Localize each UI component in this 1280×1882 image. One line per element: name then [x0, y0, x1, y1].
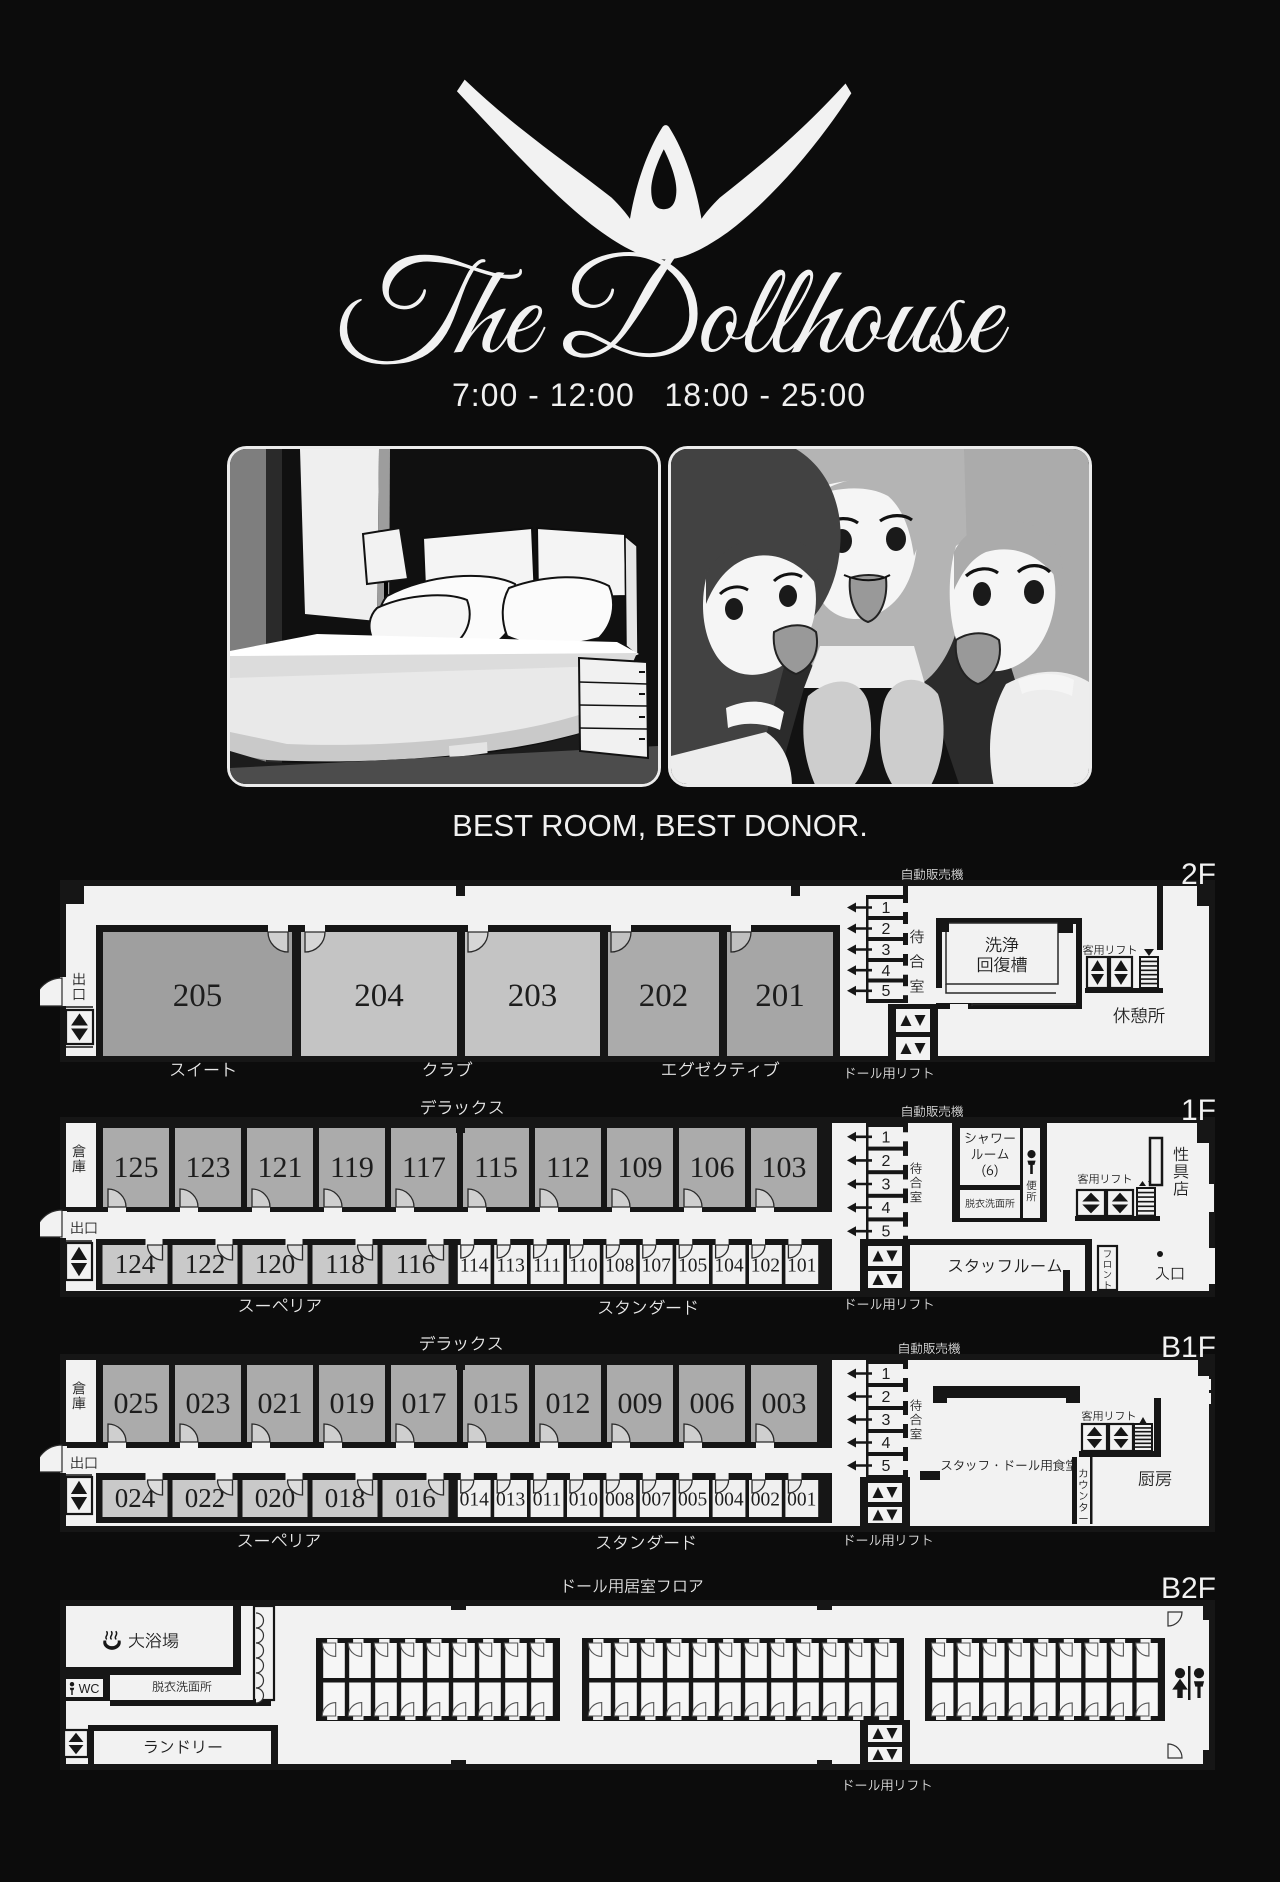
svg-text:106: 106 [690, 1151, 735, 1184]
svg-text:021: 021 [258, 1387, 303, 1420]
svg-text:202: 202 [639, 978, 689, 1014]
svg-text:1F: 1F [1181, 1095, 1216, 1127]
svg-text:019: 019 [330, 1387, 375, 1420]
svg-text:B1F: B1F [1161, 1332, 1216, 1364]
svg-text:1: 1 [882, 900, 891, 917]
svg-text:122: 122 [185, 1249, 226, 1279]
svg-text:025: 025 [114, 1387, 159, 1420]
svg-text:5: 5 [882, 983, 891, 1000]
svg-text:023: 023 [186, 1387, 231, 1420]
svg-text:003: 003 [762, 1387, 807, 1420]
svg-text:116: 116 [396, 1249, 436, 1279]
svg-text:110: 110 [569, 1256, 598, 1277]
svg-text:101: 101 [787, 1256, 816, 1277]
svg-text:108: 108 [605, 1256, 634, 1277]
svg-text:107: 107 [642, 1256, 672, 1277]
svg-text:111: 111 [533, 1256, 561, 1277]
svg-text:016: 016 [395, 1483, 436, 1513]
svg-text:2: 2 [882, 921, 891, 938]
svg-text:015: 015 [474, 1387, 519, 1420]
svg-text:5: 5 [882, 1458, 891, 1475]
svg-text:4: 4 [882, 1435, 891, 1452]
svg-text:3: 3 [882, 942, 891, 959]
svg-text:118: 118 [325, 1249, 365, 1279]
svg-text:119: 119 [330, 1151, 374, 1184]
svg-text:104: 104 [714, 1256, 744, 1277]
svg-text:009: 009 [618, 1387, 663, 1420]
svg-text:113: 113 [496, 1256, 525, 1277]
svg-text:2F: 2F [1181, 858, 1216, 891]
svg-text:102: 102 [751, 1256, 780, 1277]
svg-text:103: 103 [762, 1151, 807, 1184]
svg-text:2: 2 [882, 1153, 891, 1170]
svg-text:3: 3 [882, 1177, 891, 1194]
svg-text:121: 121 [258, 1151, 303, 1184]
svg-text:B2F: B2F [1161, 1572, 1216, 1605]
svg-text:3: 3 [882, 1412, 891, 1429]
svg-text:5: 5 [882, 1224, 891, 1241]
svg-text:115: 115 [474, 1151, 518, 1184]
svg-text:203: 203 [508, 978, 558, 1014]
svg-text:4: 4 [882, 963, 891, 980]
svg-text:205: 205 [173, 978, 223, 1014]
svg-text:120: 120 [255, 1249, 296, 1279]
svg-text:114: 114 [460, 1256, 489, 1277]
svg-text:123: 123 [186, 1151, 231, 1184]
svg-text:006: 006 [690, 1387, 735, 1420]
svg-text:1: 1 [882, 1129, 891, 1146]
svg-text:4: 4 [882, 1200, 891, 1217]
svg-text:201: 201 [755, 978, 805, 1014]
svg-text:1: 1 [882, 1366, 891, 1383]
svg-text:125: 125 [114, 1151, 159, 1184]
svg-text:WC: WC [79, 1682, 100, 1696]
svg-text:117: 117 [402, 1151, 446, 1184]
svg-text:204: 204 [354, 978, 404, 1014]
svg-text:2: 2 [882, 1389, 891, 1406]
svg-text:105: 105 [678, 1256, 707, 1277]
svg-text:112: 112 [546, 1151, 590, 1184]
svg-text:012: 012 [546, 1387, 591, 1420]
svg-text:109: 109 [618, 1151, 663, 1184]
svg-text:017: 017 [402, 1387, 447, 1420]
